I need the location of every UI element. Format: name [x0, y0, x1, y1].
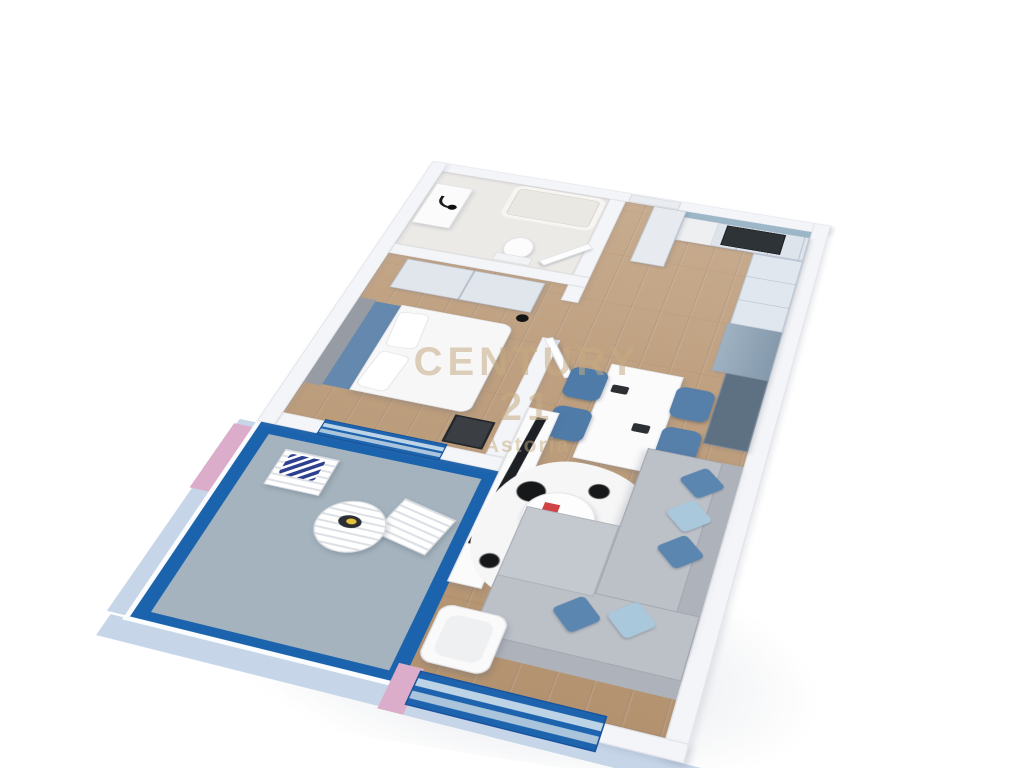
- floorplan-render: CENTURY 21 Astoria: [0, 0, 1024, 768]
